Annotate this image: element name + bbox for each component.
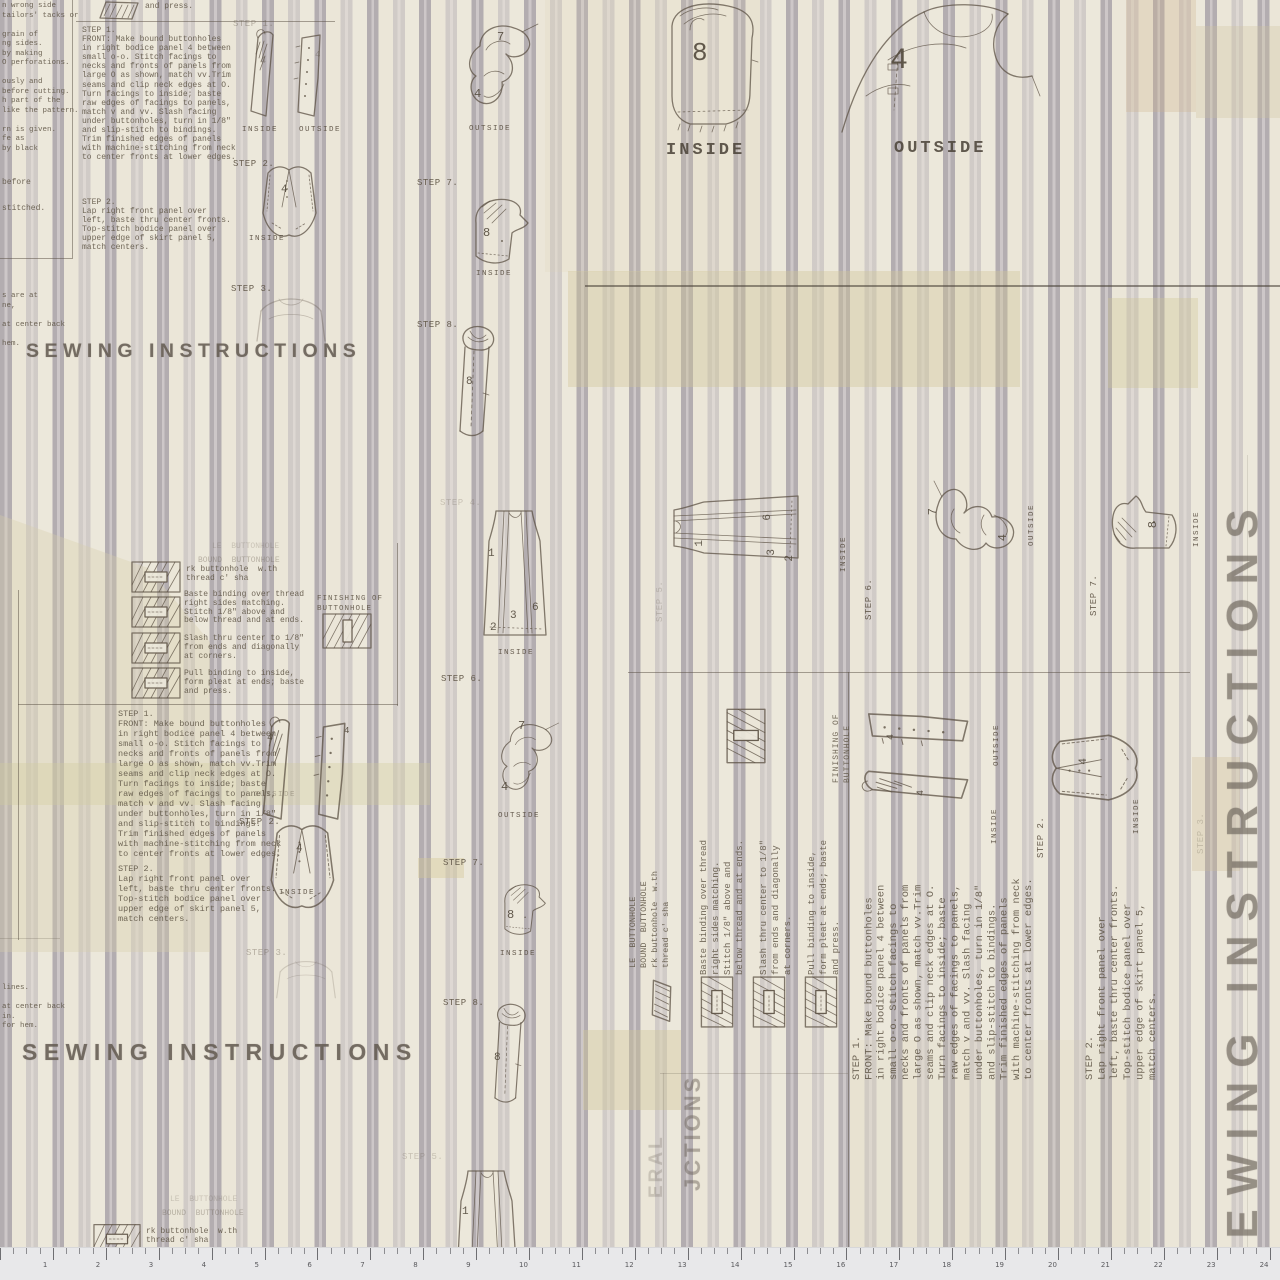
- step1-instructions-rotated: STEP 1. FRONT: Make bound buttonholes in…: [851, 850, 1037, 1080]
- piece-number: 8: [1146, 521, 1160, 528]
- ruler-tick: [225, 1248, 226, 1254]
- ruler-number: 10: [519, 1261, 528, 1269]
- piece-number: 4: [996, 534, 1010, 541]
- ruler-number: 8: [413, 1261, 417, 1269]
- ruler-number: 7: [360, 1261, 364, 1269]
- ruler-tick: [93, 1248, 94, 1254]
- outside-label: OUTSIDE: [894, 139, 986, 158]
- ruler-tick: [780, 1248, 781, 1254]
- ruler-number: 18: [942, 1261, 951, 1269]
- ruler-tick: [436, 1248, 437, 1254]
- buttonhole-step-diagram: [131, 667, 181, 699]
- and-press-label: and press.: [145, 2, 193, 11]
- headline-fragment-rotated: JCTIONS: [680, 1096, 706, 1191]
- ruler-number: 1: [43, 1261, 47, 1269]
- outside-label: OUTSIDE: [469, 125, 511, 133]
- ruler-tick: [1230, 1248, 1231, 1254]
- ruler-tick: [159, 1248, 160, 1260]
- ruler-tick: [674, 1248, 675, 1254]
- piece-number: 8: [494, 1052, 501, 1064]
- ruler-tick: [873, 1248, 874, 1254]
- ruler-tick: [754, 1248, 755, 1254]
- ruler-tick: [463, 1248, 464, 1254]
- ruler-tick: [741, 1248, 742, 1260]
- step5-label: STEP 5.: [655, 572, 665, 622]
- ruler-number: 4: [202, 1261, 206, 1269]
- ruler-tick: [1124, 1248, 1125, 1254]
- piece-number: 2: [490, 622, 497, 634]
- piece-number: 4: [501, 780, 508, 794]
- measuring-ruler: 123456789101112131415161718192021222324: [0, 1247, 1280, 1280]
- ruler-tick: [661, 1248, 662, 1254]
- inside-label: INSIDE: [476, 270, 512, 278]
- ruler-tick: [569, 1248, 570, 1254]
- hatched-swatch-sketch-rotated: [650, 976, 672, 1030]
- ruler-tick: [1045, 1248, 1046, 1254]
- hatched-swatch-sketch: [92, 0, 142, 20]
- ruler-tick: [66, 1248, 67, 1254]
- ruler-number: 14: [731, 1261, 740, 1269]
- step3-label: STEP 3.: [1196, 808, 1206, 854]
- buttonhole-intro-text: rk buttonhole w.th thread c' sha: [186, 565, 277, 583]
- ruler-tick: [26, 1248, 27, 1254]
- ruler-number: 20: [1048, 1261, 1057, 1269]
- outside-label: OUTSIDE: [498, 812, 540, 820]
- tape-strip-top-center: [568, 271, 1020, 387]
- ruler-tick: [542, 1248, 543, 1254]
- ruler-number: 23: [1207, 1261, 1216, 1269]
- ruler-tick: [1005, 1248, 1006, 1260]
- step2-instructions-rotated: STEP 2. Lap right front panel over left,…: [1084, 890, 1162, 1080]
- margin-text-fragments: n wrong side tailors' tacks or grain of …: [2, 2, 79, 154]
- piece-number: 4: [890, 44, 908, 78]
- tape-top-right-tan: [1126, 0, 1196, 112]
- headline-sewing-instructions: SEWING INSTRUCTIONS: [26, 340, 361, 363]
- ruler-tick: [555, 1248, 556, 1254]
- ruler-tick: [40, 1248, 41, 1254]
- piece-number: 1: [488, 548, 495, 560]
- ruler-tick: [1084, 1248, 1085, 1254]
- piece-number: 1: [462, 1206, 469, 1218]
- ruler-tick: [714, 1248, 715, 1254]
- step2-label: STEP 2.: [1036, 812, 1046, 858]
- ruler-number: 2: [96, 1261, 100, 1269]
- sleeve-cap-large-sketch: [650, 0, 764, 138]
- ruler-tick: [450, 1248, 451, 1254]
- sheet-rule-line: [76, 21, 335, 22]
- ruler-tick: [529, 1248, 530, 1260]
- ruler-tick: [119, 1248, 120, 1254]
- piece-number: 4: [315, 50, 320, 60]
- ruler-tick: [53, 1248, 54, 1260]
- outside-label: OUTSIDE: [1028, 496, 1036, 546]
- ruler-tick: [185, 1248, 186, 1254]
- ruler-tick: [13, 1248, 14, 1254]
- ruler-number: 19: [995, 1261, 1004, 1269]
- ruler-number: 13: [678, 1261, 687, 1269]
- fabric-print-swatch: and press. n wrong side tailors' tacks o…: [0, 0, 1280, 1280]
- ruler-tick: [357, 1248, 358, 1254]
- inside-label: INSIDE: [500, 950, 536, 958]
- step6-label: STEP 6.: [864, 566, 874, 620]
- collar-piece-sketch-rotated: [930, 477, 1034, 573]
- ruler-tick: [410, 1248, 411, 1254]
- ruler-tick: [1256, 1248, 1257, 1254]
- sheet-edge-line: [18, 590, 19, 940]
- buttonhole-step-diagram: [131, 596, 181, 628]
- ruler-tick: [331, 1248, 332, 1254]
- ruler-tick: [106, 1248, 107, 1260]
- ruler-tick: [278, 1248, 279, 1254]
- ruler-tick: [238, 1248, 239, 1254]
- finishing-of-buttonhole-label-rotated: FINISHING OF BUTTONHOLE: [831, 703, 857, 783]
- headline-sewing-instructions: SEWING INSTRUCTIONS: [22, 1039, 418, 1066]
- piece-number: 4: [886, 734, 897, 740]
- ruler-number: 16: [836, 1261, 845, 1269]
- inside-label: INSIDE: [991, 800, 999, 844]
- ruler-tick: [198, 1248, 199, 1254]
- ruler-tick: [1190, 1248, 1191, 1254]
- ruler-tick: [979, 1248, 980, 1254]
- ruler-tick: [476, 1248, 477, 1260]
- ruler-tick: [291, 1248, 292, 1254]
- bodice-outline-sketch: [264, 953, 348, 1003]
- bound-buttonhole-header: LE BUTTONHOLE: [212, 542, 279, 551]
- piece-number: 4: [296, 843, 303, 855]
- ruler-tick: [397, 1248, 398, 1254]
- ruler-tick: [489, 1248, 490, 1254]
- piece-number: 4: [1078, 758, 1090, 765]
- ruler-number: 12: [625, 1261, 634, 1269]
- ruler-tick: [794, 1248, 795, 1260]
- ruler-tick: [635, 1248, 636, 1260]
- step7-label: STEP 7.: [1089, 561, 1099, 616]
- ruler-tick: [992, 1248, 993, 1254]
- ruler-tick: [132, 1248, 133, 1254]
- piece-number: 7: [926, 508, 940, 515]
- ruler-tick: [212, 1248, 213, 1260]
- sheet-edge-line: [397, 543, 398, 706]
- piece-number: 4: [474, 87, 481, 101]
- step2-instructions: STEP 2. Lap right front panel over left,…: [118, 864, 276, 924]
- step6-label: STEP 6.: [441, 674, 482, 684]
- ruler-tick: [846, 1248, 847, 1260]
- ruler-tick: [886, 1248, 887, 1254]
- bodice-back-sketch: [472, 505, 558, 647]
- inside-label: INSIDE: [242, 126, 278, 134]
- bodice-front-sketch: [258, 161, 322, 241]
- headline-fragment-rotated: ERAL: [646, 1138, 668, 1198]
- ruler-number: 5: [255, 1261, 259, 1269]
- ruler-number: 6: [307, 1261, 311, 1269]
- ruler-tick: [503, 1248, 504, 1254]
- ruler-tick: [423, 1248, 424, 1260]
- tape-bottom-center: [583, 1030, 681, 1110]
- inside-label: INSIDE: [1133, 788, 1141, 834]
- piece-number: 4: [916, 790, 927, 796]
- buttonhole-step-diagram: [131, 632, 181, 664]
- ruler-tick: [939, 1248, 940, 1254]
- ruler-tick: [622, 1248, 623, 1254]
- piece-number: 8: [483, 226, 490, 240]
- margin-text-fragments: lines. at center back in. for hem.: [2, 984, 65, 1032]
- ruler-tick: [965, 1248, 966, 1254]
- piece-number: 4: [281, 184, 288, 196]
- piece-number: 3: [510, 610, 517, 622]
- piece-number: 1: [694, 540, 706, 547]
- sheet-edge-line: [0, 938, 60, 939]
- piece-number: 2: [784, 555, 796, 562]
- ruler-tick: [820, 1248, 821, 1254]
- ruler-tick: [1164, 1248, 1165, 1260]
- ruler-number: 15: [784, 1261, 793, 1269]
- bound-buttonhole-header: BOUND BUTTONHOLE: [198, 556, 280, 565]
- finishing-buttonhole-diagram: [322, 613, 372, 649]
- ruler-tick: [265, 1248, 266, 1260]
- sleeve-piece-sketch: [450, 323, 508, 441]
- ruler-number: 17: [889, 1261, 898, 1269]
- inside-label: INSIDE: [1193, 501, 1201, 547]
- ruler-tick: [317, 1248, 318, 1260]
- ruler-tick: [1137, 1248, 1138, 1254]
- ruler-tick: [807, 1248, 808, 1254]
- sheet-rule-line: [18, 704, 398, 705]
- ruler-tick: [860, 1248, 861, 1254]
- ruler-tick: [304, 1248, 305, 1254]
- inside-label: INSIDE: [666, 141, 745, 160]
- outside-label: OUTSIDE: [299, 126, 341, 134]
- ruler-tick: [1018, 1248, 1019, 1254]
- ruler-tick: [952, 1248, 953, 1260]
- ruler-tick: [1217, 1248, 1218, 1260]
- ruler-tick: [172, 1248, 173, 1254]
- ruler-number: 3: [149, 1261, 153, 1269]
- step7-label: STEP 7.: [417, 178, 458, 188]
- step1-instructions: STEP 1. FRONT: Make bound buttonholes in…: [82, 26, 236, 162]
- inside-label: INSIDE: [840, 514, 848, 572]
- ruler-tick: [899, 1248, 900, 1260]
- ruler-tick: [1151, 1248, 1152, 1254]
- ruler-number: 24: [1260, 1261, 1269, 1269]
- inside-label: INSIDE: [498, 649, 534, 657]
- buttonhole-intro-text: rk buttonhole w.th thread c' sha: [146, 1227, 237, 1245]
- collar-piece-sketch: [446, 20, 542, 124]
- buttonhole-step-diagram-rotated: [700, 976, 734, 1028]
- ruler-tick: [1032, 1248, 1033, 1254]
- step2-instructions: STEP 2. Lap right front panel over left,…: [82, 198, 231, 253]
- ruler-tick: [648, 1248, 649, 1254]
- outside-label: OUTSIDE: [254, 791, 296, 799]
- ruler-tick: [1270, 1248, 1271, 1260]
- ruler-tick: [926, 1248, 927, 1254]
- pattern-panels-sketch: [238, 28, 338, 126]
- bound-buttonhole-header-rotated: LE BUTTONHOLE BOUND BUTTONHOLE rk button…: [628, 856, 672, 968]
- buttonhole-steps-text: Baste binding over thread right sides ma…: [184, 591, 304, 697]
- ruler-tick: [1111, 1248, 1112, 1260]
- sheet-rule-line: [660, 1073, 848, 1074]
- ruler-tick: [516, 1248, 517, 1254]
- step7-label: STEP 7.: [443, 858, 484, 868]
- ruler-tick: [1071, 1248, 1072, 1254]
- sheet-edge-line: [0, 258, 73, 259]
- ruler-tick: [833, 1248, 834, 1254]
- fold-line: [585, 285, 1280, 287]
- buttonhole-step-diagram-rotated: [752, 976, 786, 1028]
- ruler-number: 11: [572, 1261, 581, 1269]
- bodice-outline-sketch: [249, 289, 333, 347]
- piece-number: 7: [518, 719, 525, 733]
- ruler-tick: [582, 1248, 583, 1260]
- outside-label: OUTSIDE: [993, 716, 1001, 766]
- ruler-tick: [688, 1248, 689, 1260]
- piece-number: 6: [762, 514, 774, 521]
- ruler-tick: [1203, 1248, 1204, 1254]
- ruler-tick: [1177, 1248, 1178, 1254]
- sheet-rule-line: [628, 672, 1190, 673]
- ruler-number: 22: [1154, 1261, 1163, 1269]
- tape-mid-right: [1108, 298, 1198, 388]
- piece-number: 6: [532, 602, 539, 614]
- piece-number: 3: [766, 549, 778, 556]
- inside-label: INSIDE: [249, 235, 285, 243]
- bound-buttonhole-header: BOUND BUTTONHOLE: [162, 1209, 244, 1218]
- cuff-piece-sketch: [462, 193, 534, 273]
- ruler-tick: [384, 1248, 385, 1254]
- piece-number: 8: [466, 376, 473, 388]
- ruler-tick: [608, 1248, 609, 1254]
- ruler-tick: [913, 1248, 914, 1254]
- ruler-tick: [251, 1248, 252, 1254]
- collar-bodice-large-sketch: [836, 0, 1056, 138]
- ruler-tick: [701, 1248, 702, 1254]
- buttonhole-step-diagram: [131, 561, 181, 593]
- ruler-tick: [79, 1248, 80, 1254]
- ruler-tick: [727, 1248, 728, 1254]
- ruler-tick: [1058, 1248, 1059, 1260]
- bound-buttonhole-header: LE BUTTONHOLE: [170, 1195, 237, 1204]
- inside-label: INSIDE: [279, 889, 315, 897]
- ruler-tick: [0, 1248, 1, 1260]
- piece-number: 4: [344, 726, 349, 736]
- margin-text-fragments: s are at ne, at center back hem.: [2, 292, 65, 349]
- ruler-tick: [370, 1248, 371, 1260]
- piece-number: 8: [507, 908, 514, 922]
- piece-number: 4: [267, 733, 273, 744]
- piece-number: 8: [692, 38, 708, 68]
- ruler-tick: [595, 1248, 596, 1254]
- piece-number: 7: [497, 30, 504, 44]
- headline-sewing-instructions-vertical: SEWING INSTRUCTIONS: [1218, 452, 1280, 1280]
- finishing-buttonhole-diagram-rotated: [726, 708, 766, 764]
- finishing-of-buttonhole-label: FINISHING OF BUTTONHOLE: [317, 595, 383, 614]
- ruler-tick: [145, 1248, 146, 1254]
- ruler-tick: [1098, 1248, 1099, 1254]
- buttonhole-step-diagram-rotated: [804, 976, 838, 1028]
- piece-number: 4: [260, 56, 266, 67]
- margin-text-fragments: before stitched.: [2, 176, 45, 215]
- step5-label: STEP 5.: [402, 1152, 443, 1162]
- tape-top-right-olive: [1196, 26, 1280, 118]
- ruler-tick: [1243, 1248, 1244, 1254]
- step8-label: STEP 8.: [443, 998, 484, 1008]
- cuff-piece-sketch: [494, 873, 550, 949]
- ruler-tick: [344, 1248, 345, 1254]
- ruler-number: 21: [1101, 1261, 1110, 1269]
- buttonhole-steps-text-rotated: Baste binding over thread right sides ma…: [698, 817, 848, 975]
- ruler-tick: [767, 1248, 768, 1254]
- ruler-number: 9: [466, 1261, 470, 1269]
